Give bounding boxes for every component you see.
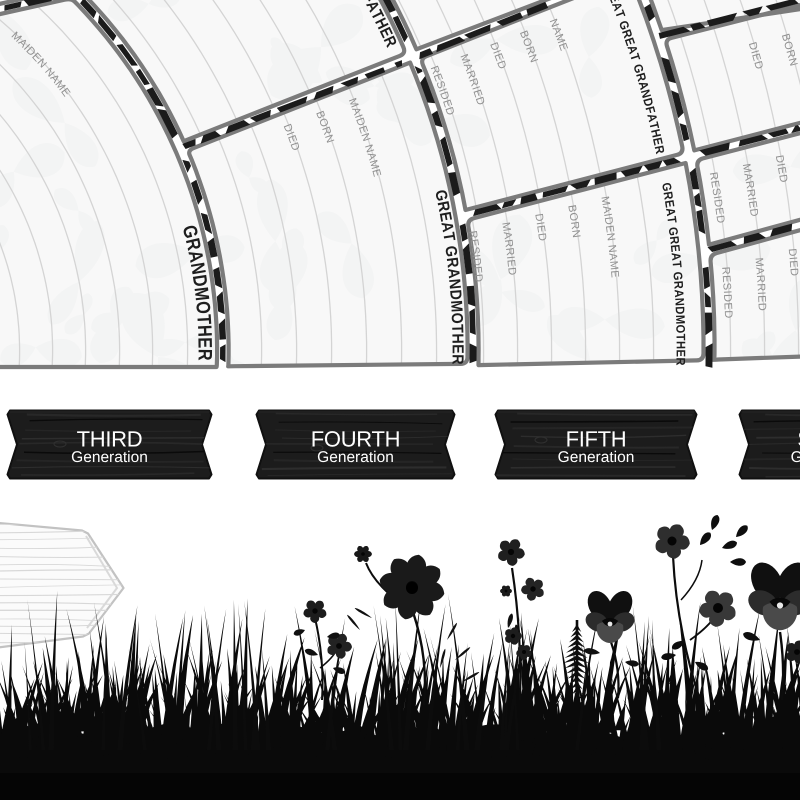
- svg-text:G: G: [670, 271, 685, 281]
- svg-text:DIED: DIED: [786, 248, 800, 277]
- svg-text:N: N: [445, 278, 463, 290]
- svg-text:R: R: [671, 280, 686, 289]
- svg-text:FOURTH: FOURTH: [311, 427, 400, 452]
- svg-text:THIRD: THIRD: [77, 427, 143, 452]
- svg-text:R: R: [194, 349, 216, 361]
- svg-text:O: O: [448, 312, 465, 324]
- svg-text:Generation: Generation: [791, 449, 800, 466]
- svg-text:O: O: [673, 324, 687, 333]
- svg-text:H: H: [193, 325, 215, 338]
- svg-text:M: M: [673, 315, 687, 325]
- svg-text:E: E: [674, 349, 688, 357]
- svg-text:T: T: [192, 314, 215, 325]
- svg-text:M: M: [447, 300, 465, 313]
- svg-text:H: H: [674, 341, 688, 349]
- svg-text:E: E: [193, 337, 215, 348]
- svg-text:D: D: [673, 306, 687, 315]
- svg-text:T: T: [673, 334, 687, 341]
- svg-text:H: H: [448, 333, 465, 344]
- svg-text:Generation: Generation: [317, 449, 394, 466]
- svg-text:T: T: [448, 324, 465, 333]
- svg-text:R: R: [673, 357, 687, 365]
- svg-text:N: N: [672, 297, 686, 306]
- svg-text:Generation: Generation: [558, 449, 635, 466]
- svg-text:M: M: [190, 286, 213, 302]
- svg-text:R: R: [448, 354, 465, 365]
- svg-text:D: D: [446, 289, 464, 301]
- svg-text:E: E: [449, 344, 466, 354]
- svg-text:Generation: Generation: [71, 449, 148, 466]
- svg-text:A: A: [672, 289, 686, 298]
- svg-text:FIFTH: FIFTH: [566, 427, 627, 452]
- svg-text:O: O: [191, 300, 214, 315]
